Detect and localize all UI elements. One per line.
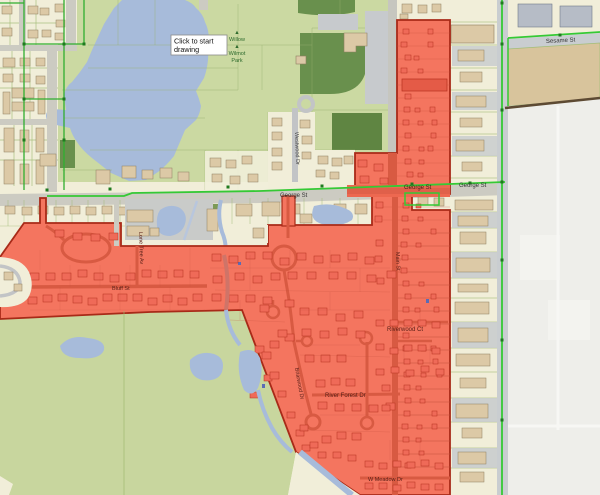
svg-text:Riverwood Ct: Riverwood Ct: [387, 327, 423, 333]
svg-text:Wilmot: Wilmot: [229, 51, 246, 57]
svg-text:drawing: drawing: [174, 45, 199, 54]
svg-text:W Meadow Dr: W Meadow Dr: [368, 477, 403, 483]
svg-text:River Forest Dr: River Forest Dr: [325, 393, 366, 399]
svg-text:Main St: Main St: [394, 252, 401, 271]
svg-text:▲: ▲: [234, 44, 239, 50]
svg-text:Willow: Willow: [229, 37, 245, 43]
svg-text:Park: Park: [231, 58, 243, 64]
svg-text:Lone Tree Av: Lone Tree Av: [137, 232, 144, 265]
svg-text:George St: George St: [459, 183, 487, 189]
svg-text:George St: George St: [280, 193, 308, 199]
svg-text:George St: George St: [404, 185, 432, 191]
svg-text:▲: ▲: [234, 30, 239, 36]
svg-text:Westwood Dr: Westwood Dr: [293, 132, 300, 165]
svg-text:Bluff St: Bluff St: [112, 286, 130, 292]
